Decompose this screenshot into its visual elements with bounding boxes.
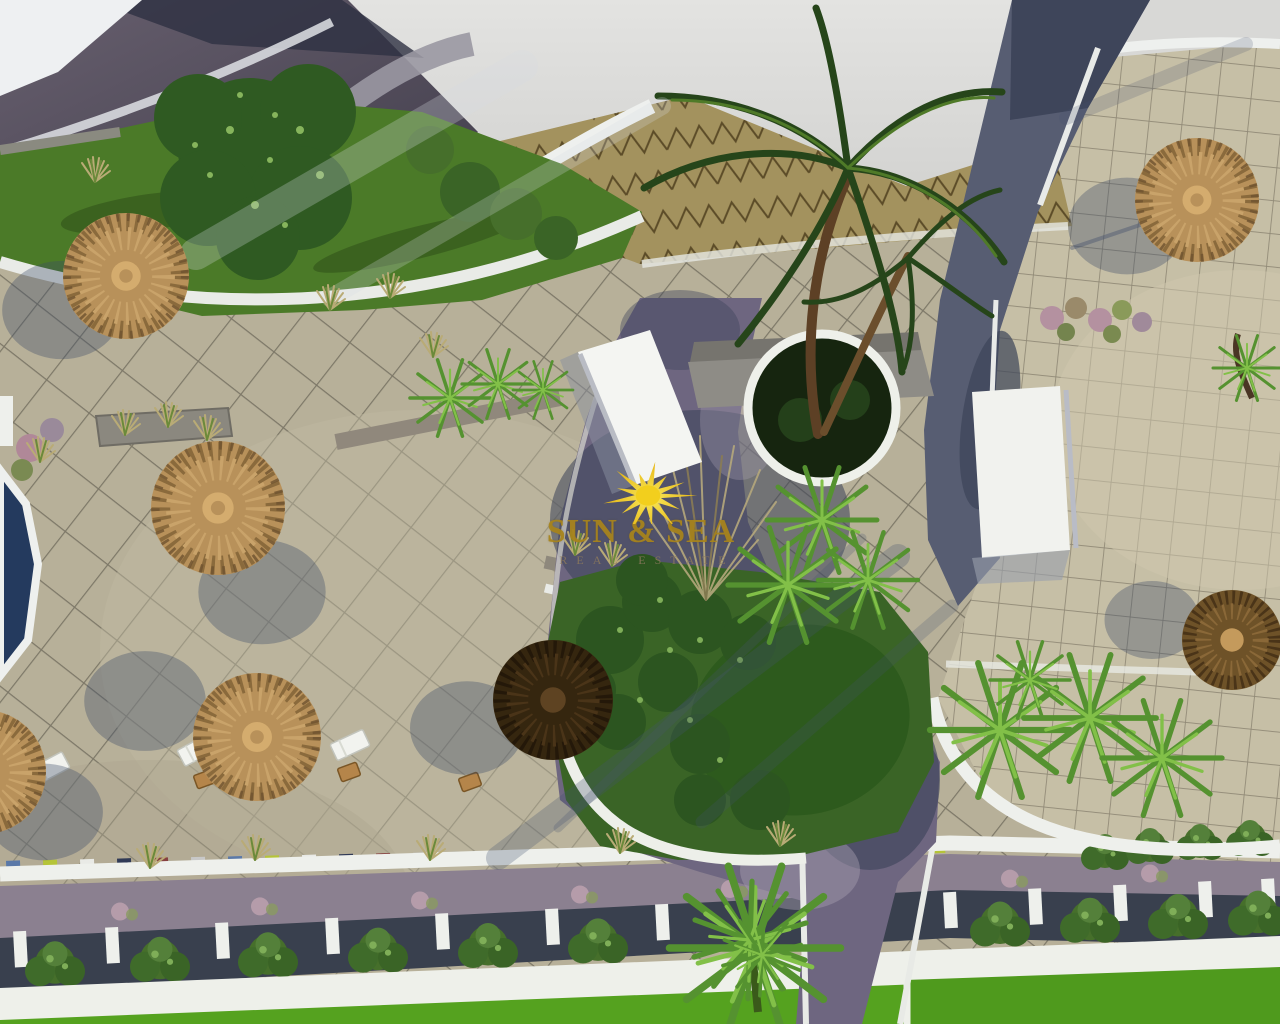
- planter-post: [325, 918, 340, 955]
- resort-courtyard-render: [0, 0, 1280, 1024]
- planter-post: [435, 913, 450, 950]
- planter-post: [655, 904, 670, 941]
- walkway-plant: [266, 903, 278, 915]
- walkway-plant: [251, 897, 269, 915]
- walkway-plant: [1016, 876, 1028, 888]
- walkway-plant: [111, 903, 129, 921]
- walkway-plant: [126, 909, 138, 921]
- thatch-umbrella: [151, 441, 285, 575]
- planter-post: [545, 908, 560, 945]
- thatch-umbrella: [1182, 590, 1280, 690]
- walkway-plant: [1001, 870, 1019, 888]
- planter-post: [1113, 885, 1128, 922]
- walkway-plant: [586, 892, 598, 904]
- walkway-plant: [426, 897, 438, 909]
- thatch-umbrella: [1135, 138, 1259, 262]
- planter-post: [215, 922, 230, 959]
- planter-post: [943, 892, 958, 929]
- planter-post: [105, 927, 120, 964]
- aerial-render-stage: SUN & SEA REAL ESTATE: [0, 0, 1280, 1024]
- planter-post: [13, 931, 28, 968]
- umbrella-shadow: [84, 651, 206, 751]
- thatch-umbrella: [63, 213, 189, 339]
- walkway-plant: [571, 886, 589, 904]
- walkway-plant: [411, 891, 429, 909]
- thatch-umbrella: [493, 640, 613, 760]
- planter-post: [1028, 888, 1043, 925]
- walkway-plant: [1156, 870, 1168, 882]
- thatch-umbrella: [193, 673, 321, 801]
- walkway-plant: [1141, 864, 1159, 882]
- white-ramp-block: [972, 386, 1070, 558]
